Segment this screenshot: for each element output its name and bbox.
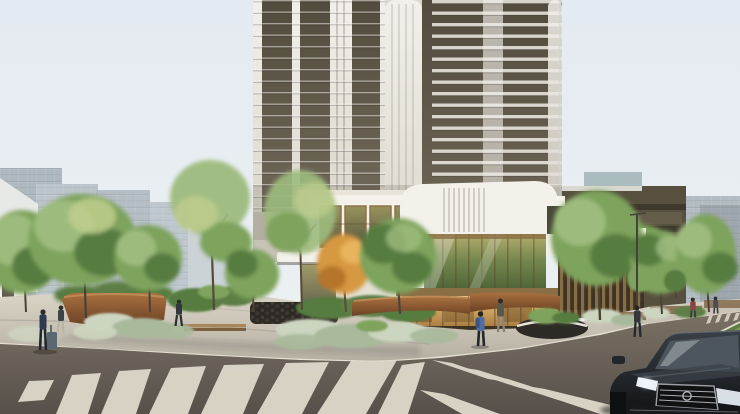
architectural-rendering-image	[0, 0, 740, 414]
curtain-wall	[420, 234, 546, 292]
backpack	[476, 318, 480, 328]
wheel-arch	[610, 392, 626, 414]
rendering-svg	[0, 0, 740, 414]
side-mirror	[612, 356, 625, 364]
suitcase	[47, 332, 57, 349]
